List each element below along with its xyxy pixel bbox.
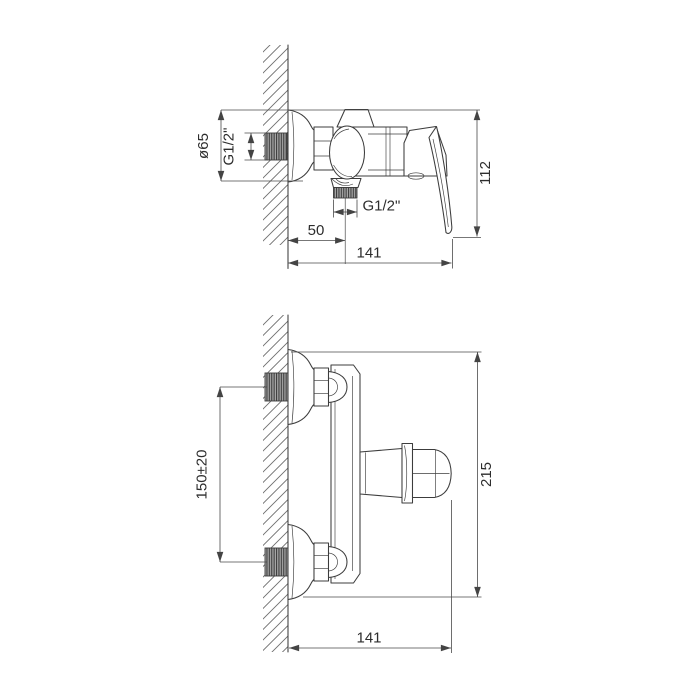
lower-hex-nut [314,543,329,581]
dim-wall-inlet-thread: G1/2" [221,128,267,166]
dim-outlet-thread: G1/2" [334,198,401,218]
cartridge-and-handle-front [360,444,451,504]
dim-label-escutcheon-diameter: ø65 [195,133,212,159]
dim-label-overall-depth-front: 141 [356,630,381,647]
upper-hex-nut [314,368,329,406]
valve-ball-side [330,126,365,179]
dim-label-overall-height-front: 215 [478,462,495,487]
wall-inlet-nipple-side [265,133,287,160]
cartridge-cap-top-side [337,110,374,128]
wall-section-front [263,315,288,652]
neck-front [360,449,402,498]
mixer-side [265,110,452,234]
dim-label-overall-height-side: 112 [477,161,494,185]
lever-handle-side [429,127,452,234]
dim-label-wall-inlet-thread: G1/2" [221,128,238,166]
dim-wall-to-outlet: 50 [288,198,345,264]
dim-overall-depth-side: 141 [288,239,453,269]
dim-inlet-spacing: 150±20 [194,387,267,562]
outlet-thread-side [334,188,358,199]
dim-label-wall-to-outlet: 50 [308,222,325,239]
upper-inlet-nipple [265,373,288,401]
upper-escutcheon [288,350,314,425]
mixer-front [265,350,451,600]
dim-overall-height-side: 112 [453,110,494,238]
dim-label-overall-depth-side: 141 [356,245,381,262]
dim-label-outlet-thread: G1/2" [363,198,401,215]
dim-label-inlet-spacing: 150±20 [194,450,211,500]
side-view: ø65 G1/2" 112 G1/2" 50 141 [195,45,494,269]
escutcheon-side [288,110,314,182]
drawing-canvas: ø65 G1/2" 112 G1/2" 50 141 [0,0,700,700]
cartridge-ring-front [402,444,413,504]
lower-escutcheon [288,525,314,600]
front-view: 150±20 215 141 [194,315,496,653]
technical-drawing: ø65 G1/2" 112 G1/2" 50 141 [0,0,700,700]
wall-hatch-front [263,315,288,652]
lower-inlet-nipple [265,548,288,576]
